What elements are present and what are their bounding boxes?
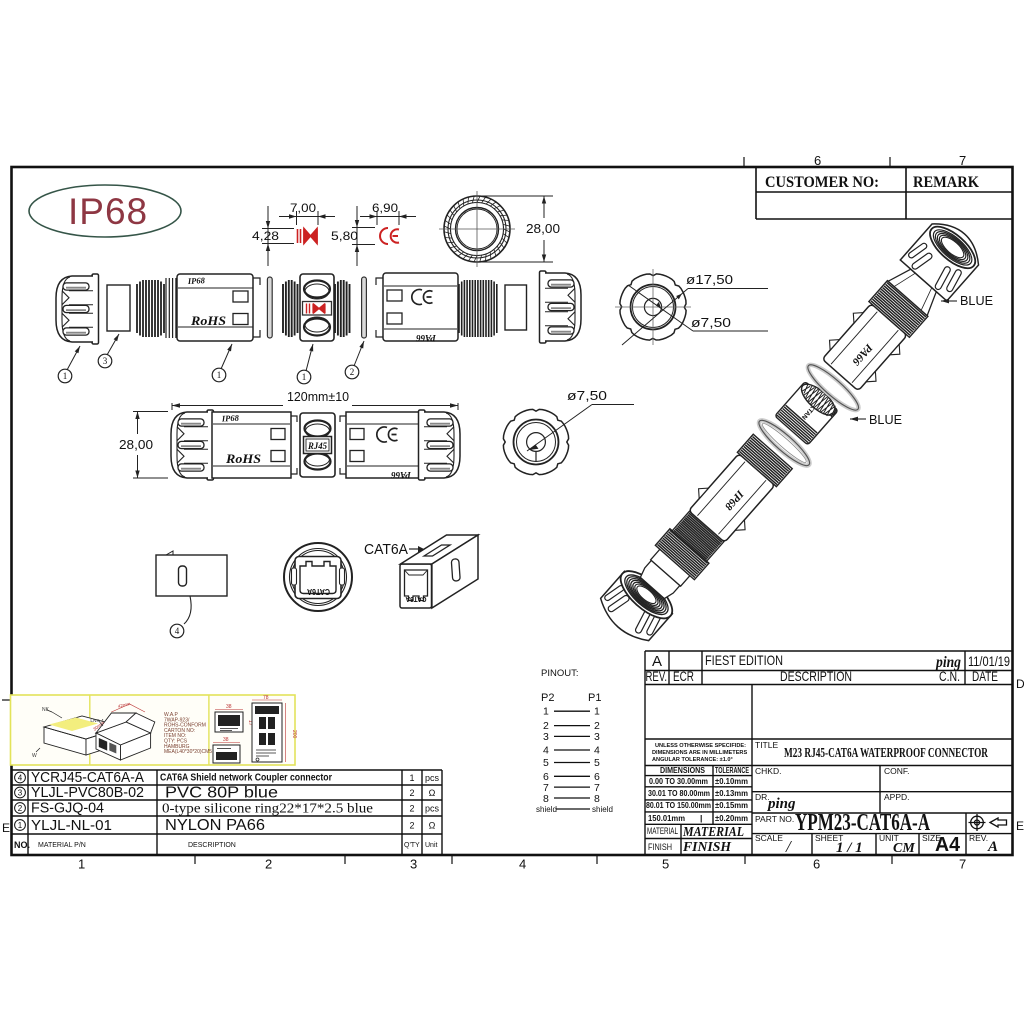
svg-text:APPD.: APPD.: [884, 792, 910, 802]
svg-text:1: 1: [409, 773, 414, 783]
svg-text:BLUE: BLUE: [960, 293, 993, 308]
svg-text:Ω: Ω: [429, 788, 436, 798]
svg-text:6: 6: [813, 857, 820, 872]
svg-text:PA66: PA66: [391, 470, 411, 480]
svg-text:MEA(L40*30*20)CM5: MEA(L40*30*20)CM5: [164, 749, 212, 755]
svg-text:2: 2: [409, 788, 414, 798]
svg-text:IP68: IP68: [221, 413, 240, 424]
svg-text:1: 1: [63, 371, 68, 381]
svg-text:BLUE: BLUE: [869, 412, 902, 427]
svg-text:2: 2: [350, 367, 355, 377]
svg-text:MATERIAL: MATERIAL: [647, 826, 678, 836]
svg-text:28,00: 28,00: [119, 438, 153, 452]
svg-text:150.01mm: 150.01mm: [648, 813, 685, 823]
svg-text:A4: A4: [935, 834, 961, 856]
svg-text:RoHS: RoHS: [190, 313, 226, 328]
svg-text:ANGULAR TOLERANCE: ±1.0°: ANGULAR TOLERANCE: ±1.0°: [652, 757, 733, 763]
svg-text:6: 6: [814, 153, 821, 168]
svg-text:±0.20mm: ±0.20mm: [715, 813, 748, 823]
svg-text:D: D: [1016, 677, 1024, 691]
svg-text:2: 2: [18, 804, 23, 813]
svg-text:MATERIAL: MATERIAL: [682, 825, 744, 840]
svg-text:P2: P2: [541, 692, 554, 704]
svg-text:38: 38: [226, 704, 232, 710]
svg-text:2: 2: [409, 804, 414, 814]
svg-text:shield: shield: [592, 805, 613, 814]
svg-text:3: 3: [543, 731, 549, 743]
svg-text:7: 7: [959, 857, 966, 872]
svg-text:YLJL-NL-01: YLJL-NL-01: [31, 817, 112, 834]
svg-text:CONF.: CONF.: [884, 766, 910, 776]
svg-text:Unit: Unit: [425, 842, 438, 849]
svg-text:ECR: ECR: [673, 669, 694, 684]
svg-text:8: 8: [594, 793, 600, 805]
svg-text:DIMENSIONS ARE IN MILLIMETERS: DIMENSIONS ARE IN MILLIMETERS: [652, 750, 747, 756]
svg-text:pcs: pcs: [425, 804, 440, 814]
svg-text:30.01 TO 80.00mm: 30.01 TO 80.00mm: [648, 788, 710, 798]
svg-text:1: 1: [217, 370, 222, 380]
svg-text:200: 200: [291, 730, 297, 739]
svg-text:C.N.: C.N.: [939, 669, 960, 684]
svg-text:2: 2: [409, 821, 414, 831]
svg-text:1: 1: [78, 857, 85, 872]
svg-text:REMARK: REMARK: [913, 174, 979, 191]
svg-text:5: 5: [543, 757, 549, 769]
svg-text:CHKD.: CHKD.: [755, 766, 781, 776]
svg-text:CAT6A: CAT6A: [307, 587, 330, 596]
svg-text:4: 4: [18, 774, 23, 783]
svg-text:DESCRIPTION: DESCRIPTION: [780, 668, 852, 684]
svg-text:FINISH: FINISH: [682, 840, 732, 855]
svg-text:ø7,50: ø7,50: [691, 315, 731, 330]
svg-text:4: 4: [543, 745, 549, 757]
svg-text:REV.: REV.: [969, 833, 988, 843]
svg-text:1: 1: [594, 706, 600, 718]
svg-text:3: 3: [18, 789, 23, 798]
svg-text:ping: ping: [766, 796, 796, 812]
svg-text:1: 1: [302, 372, 307, 382]
svg-text:120mm±10: 120mm±10: [287, 389, 349, 404]
svg-text:TOLERANCE: TOLERANCE: [715, 766, 749, 775]
svg-text:PVC 80P blue: PVC 80P blue: [165, 785, 278, 802]
svg-text:38: 38: [223, 737, 229, 743]
svg-text:3: 3: [410, 857, 417, 872]
svg-text:5: 5: [662, 857, 669, 872]
svg-text:2: 2: [265, 857, 272, 872]
svg-text:W: W: [32, 753, 37, 759]
svg-text:CM: CM: [893, 841, 915, 856]
svg-text:Q'TY: Q'TY: [404, 842, 420, 849]
svg-text:NK: NK: [42, 707, 50, 713]
svg-text:RJ45: RJ45: [307, 442, 327, 452]
svg-text:4: 4: [594, 745, 600, 757]
svg-text:0.00 TO 30.00mm: 0.00 TO 30.00mm: [649, 776, 708, 786]
svg-text:ø17,50: ø17,50: [686, 272, 733, 287]
svg-text:IP68: IP68: [187, 275, 206, 286]
svg-text:4: 4: [519, 857, 526, 872]
svg-text:±0.10mm: ±0.10mm: [715, 776, 748, 786]
svg-text:1 / 1: 1 / 1: [836, 840, 863, 856]
svg-text:E: E: [1016, 819, 1024, 833]
svg-text:3: 3: [103, 356, 108, 366]
svg-text:TITLE: TITLE: [755, 740, 778, 750]
svg-text:Ω: Ω: [429, 821, 436, 831]
svg-text:P1: P1: [588, 692, 601, 704]
svg-text:shield: shield: [536, 805, 557, 814]
svg-text:±0.13mm: ±0.13mm: [715, 788, 748, 798]
svg-text:78: 78: [263, 695, 269, 701]
svg-text:DESCRIPTION: DESCRIPTION: [188, 842, 236, 849]
svg-text:E: E: [2, 821, 10, 835]
svg-text:NYLON PA66: NYLON PA66: [165, 817, 265, 834]
svg-text:LNK 4: LNK 4: [90, 718, 104, 724]
svg-text:7: 7: [959, 153, 966, 168]
svg-text:|: |: [700, 813, 702, 823]
svg-text:CAT6A Shield network Couple: CAT6A Shield network Coupler connector: [160, 772, 332, 784]
svg-text:5: 5: [594, 757, 600, 769]
svg-text:CUSTOMER NO:: CUSTOMER NO:: [765, 174, 879, 191]
svg-text:REV.: REV.: [646, 669, 668, 684]
svg-text:5,80: 5,80: [331, 229, 358, 243]
svg-text:A: A: [987, 839, 998, 855]
svg-text:M23 RJ45-CAT6A WATERPROOF CONN: M23 RJ45-CAT6A WATERPROOF CONNECTOR: [784, 746, 989, 761]
svg-text:IP68: IP68: [68, 191, 148, 232]
svg-text:28,00: 28,00: [526, 222, 560, 236]
svg-text:1: 1: [18, 821, 23, 830]
svg-text:ø7,50: ø7,50: [567, 388, 607, 403]
svg-text:8: 8: [543, 793, 549, 805]
svg-text:±0.15mm: ±0.15mm: [715, 800, 748, 810]
svg-text:80.01 TO 150.00mm: 80.01 TO 150.00mm: [646, 800, 711, 810]
svg-text:FS-GJQ-04: FS-GJQ-04: [31, 800, 104, 817]
svg-text:SCALE: SCALE: [755, 833, 783, 843]
svg-text:6,90: 6,90: [372, 201, 398, 215]
svg-text:DIMENSIONS: DIMENSIONS: [660, 766, 706, 775]
svg-text:A: A: [652, 653, 662, 670]
svg-text:YLJL-PVC80B-02: YLJL-PVC80B-02: [31, 784, 144, 801]
svg-text:MATERIAL P/N: MATERIAL P/N: [38, 842, 86, 849]
svg-text:CAT6A: CAT6A: [405, 595, 426, 604]
svg-text:3: 3: [594, 731, 600, 743]
svg-text:1: 1: [543, 706, 549, 718]
svg-text:11/01/19: 11/01/19: [968, 654, 1010, 669]
svg-text:0-type silicone ring22*17*2.5: 0-type silicone ring22*17*2.5 blue: [162, 801, 373, 816]
svg-text:PART NO.: PART NO.: [755, 814, 794, 824]
svg-text:4: 4: [175, 626, 180, 636]
svg-text:4,28: 4,28: [252, 229, 279, 243]
svg-text:FIEST EDITION: FIEST EDITION: [705, 652, 783, 668]
svg-text:pcs: pcs: [425, 773, 440, 783]
svg-text:DATE: DATE: [972, 669, 998, 684]
svg-text:7,00: 7,00: [290, 201, 316, 215]
svg-text:UNLESS OTHERWISE SPECIFIDE:: UNLESS OTHERWISE SPECIFIDE:: [655, 743, 746, 749]
svg-text:NO.: NO.: [14, 840, 30, 850]
svg-text:FINISH: FINISH: [648, 842, 672, 852]
svg-text:RoHS: RoHS: [225, 451, 261, 466]
svg-text:PINOUT:: PINOUT:: [541, 668, 578, 679]
svg-text:CAT6A: CAT6A: [364, 542, 408, 558]
svg-text:PA66: PA66: [416, 333, 436, 343]
